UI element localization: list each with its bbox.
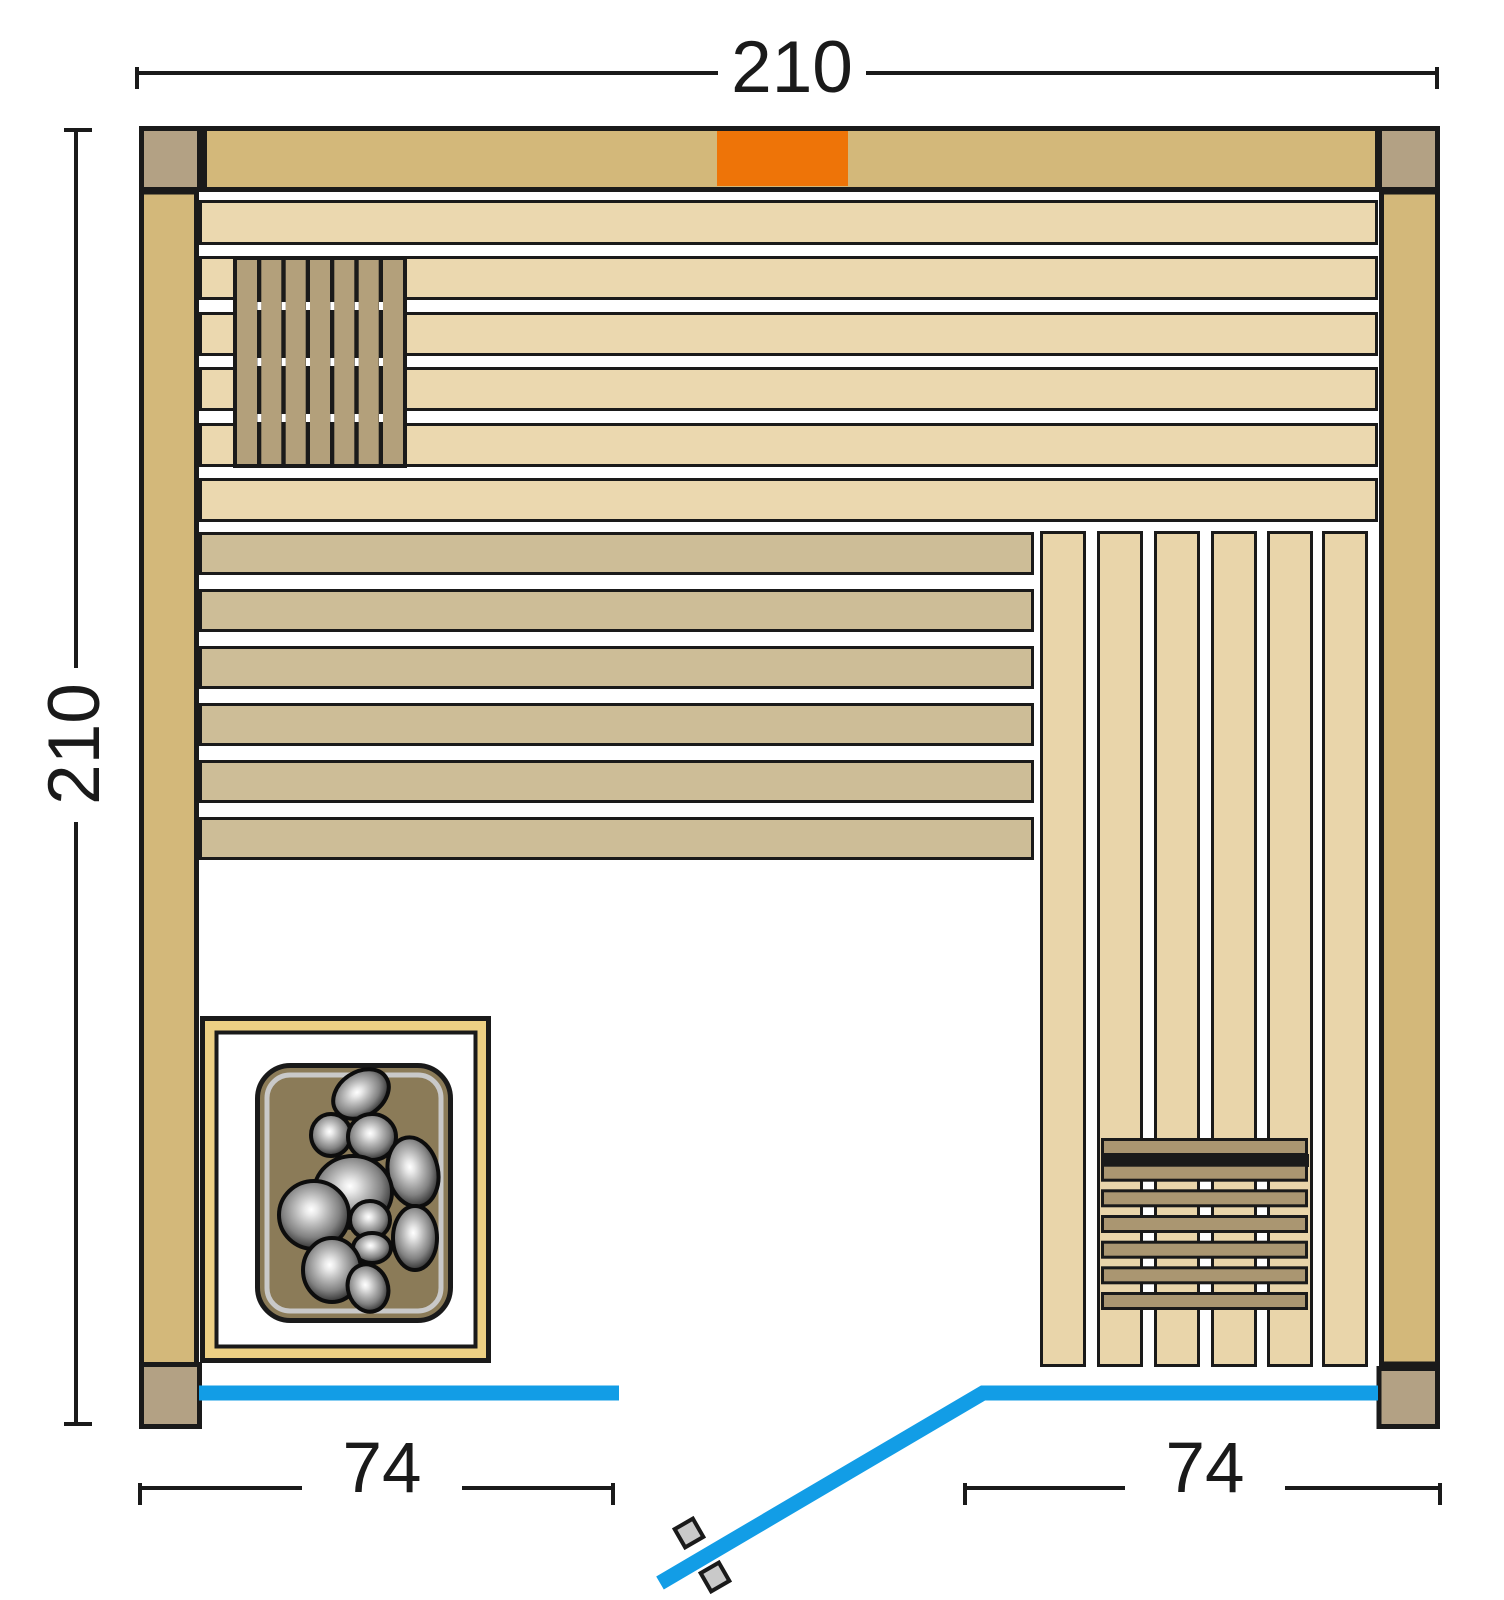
svg-text:74: 74: [1166, 1429, 1245, 1508]
svg-text:74: 74: [343, 1429, 422, 1508]
svg-text:210: 210: [731, 27, 853, 108]
svg-text:210: 210: [34, 683, 115, 805]
